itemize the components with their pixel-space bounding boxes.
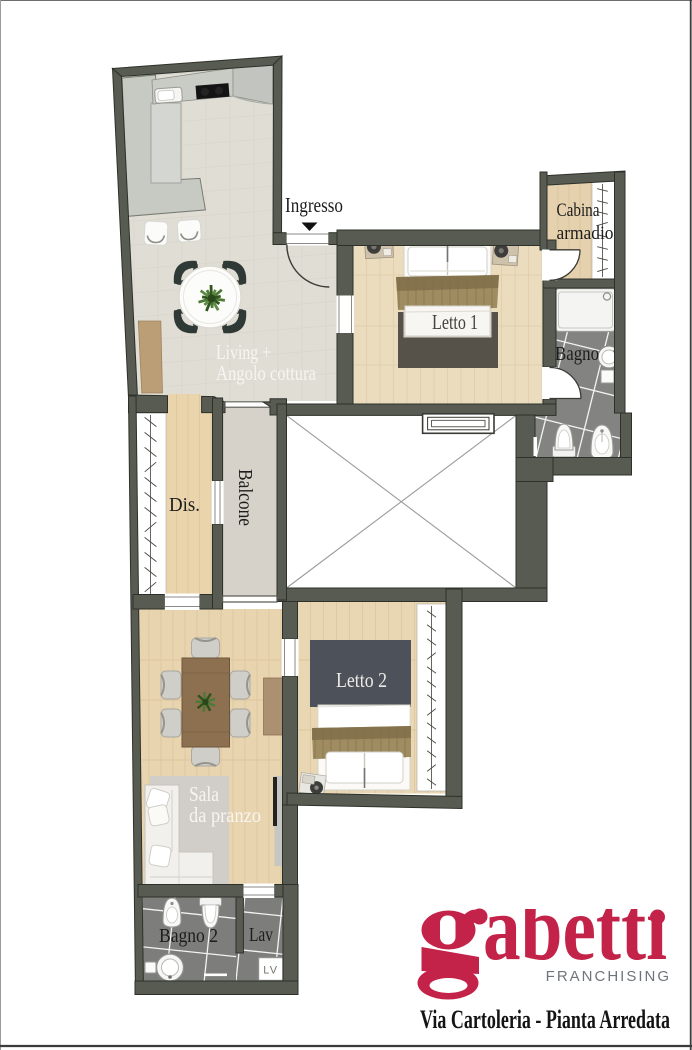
svg-text:Letto 1: Letto 1 (432, 310, 478, 334)
svg-text:LV: LV (263, 965, 278, 977)
svg-text:FRANCHISING: FRANCHISING (546, 968, 671, 985)
svg-text:abetti: abetti (483, 877, 667, 979)
svg-text:Balcone: Balcone (234, 469, 256, 526)
svg-text:Via Cartoleria - Pianta Arreda: Via Cartoleria - Pianta Arredata (420, 1005, 670, 1034)
svg-text:Cabina: Cabina (557, 200, 600, 221)
svg-text:Ingresso: Ingresso (285, 193, 343, 217)
svg-text:Bagno: Bagno (555, 344, 599, 365)
svg-text:Bagno 2: Bagno 2 (159, 925, 218, 947)
svg-text:Dis.: Dis. (169, 494, 200, 516)
svg-text:Angolo cottura: Angolo cottura (216, 361, 316, 385)
svg-text:armadio: armadio (557, 223, 614, 244)
svg-text:Letto 2: Letto 2 (336, 668, 387, 692)
svg-text:Lav: Lav (249, 924, 273, 946)
svg-text:da pranzo: da pranzo (189, 803, 261, 827)
